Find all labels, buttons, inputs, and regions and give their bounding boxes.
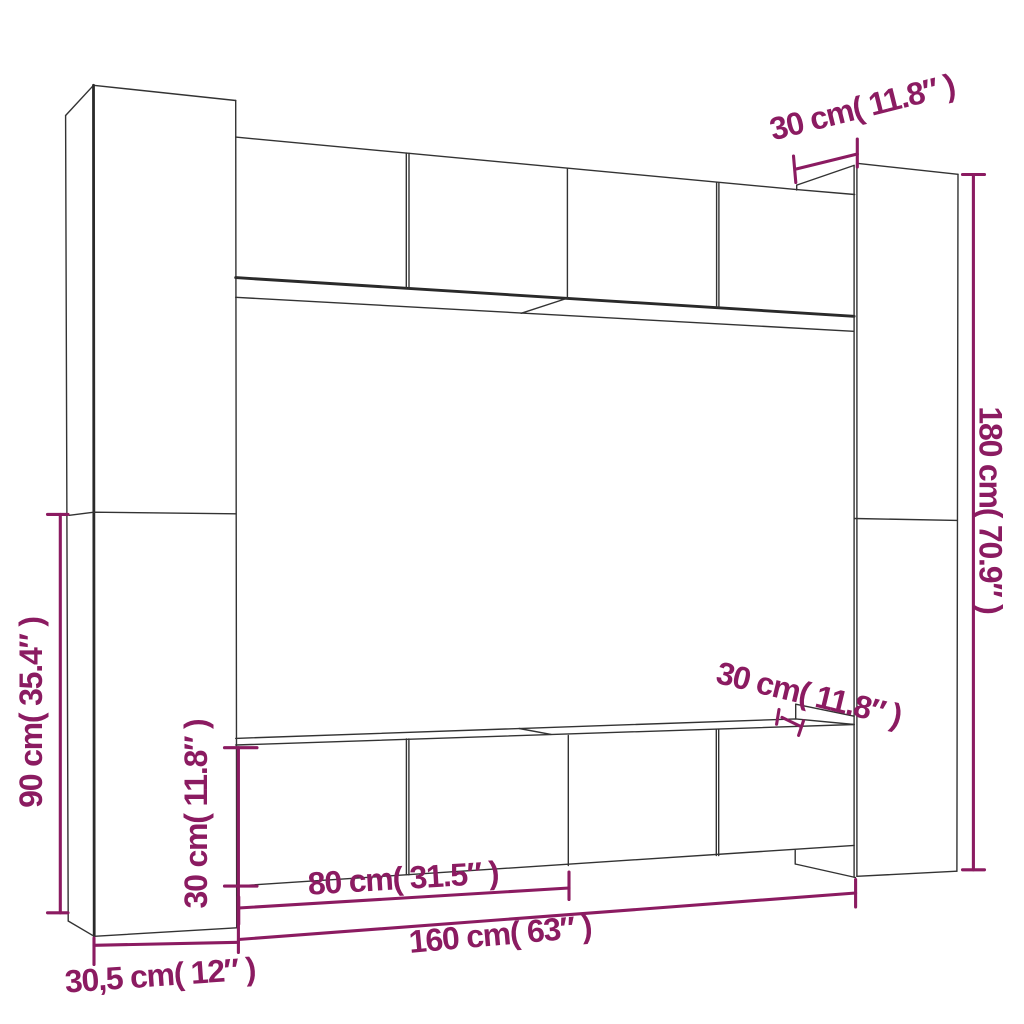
svg-text:160 cm( 63″ ): 160 cm( 63″ ): [407, 908, 593, 960]
svg-text:90 cm( 35.4″ ): 90 cm( 35.4″ ): [13, 617, 49, 808]
svg-text:30 cm( 11.8″ ): 30 cm( 11.8″ ): [766, 67, 958, 148]
svg-text:30 cm( 11.8″ ): 30 cm( 11.8″ ): [713, 654, 906, 733]
svg-text:30 cm( 11.8″ ): 30 cm( 11.8″ ): [178, 719, 214, 908]
svg-text:180 cm( 70.9″ ): 180 cm( 70.9″ ): [973, 406, 1009, 614]
